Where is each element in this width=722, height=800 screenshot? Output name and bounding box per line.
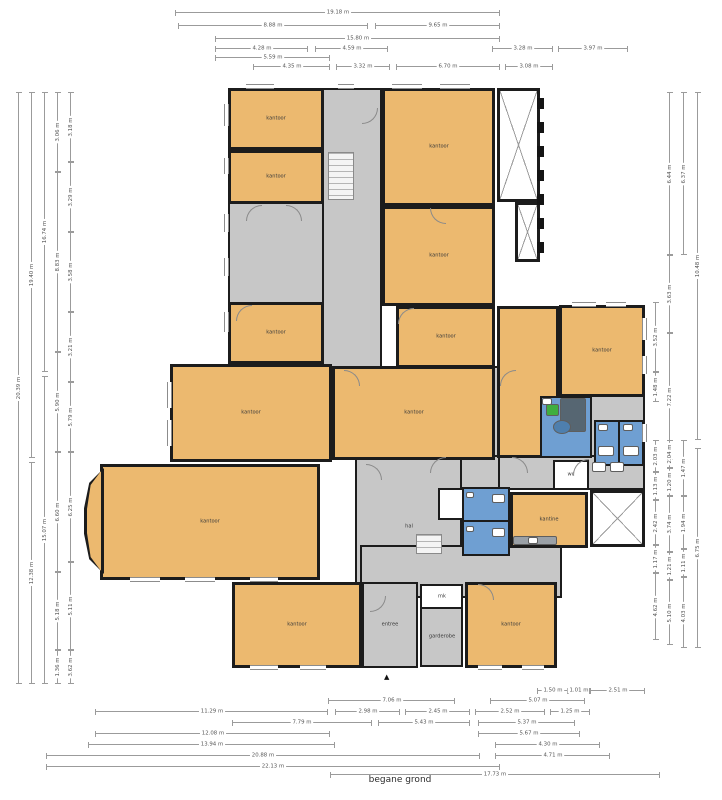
window [224, 258, 229, 276]
window [185, 577, 215, 582]
room-label: kantoor [266, 174, 286, 180]
fixture-sink [466, 526, 474, 532]
window [224, 312, 229, 332]
bay-window [84, 468, 104, 574]
room-label: kantoor [241, 410, 261, 416]
room-kantoor: kantoor [170, 364, 332, 462]
window [130, 577, 160, 582]
room-void [497, 88, 540, 202]
room-void [590, 490, 645, 547]
wall-segment [537, 242, 544, 253]
window [572, 302, 596, 307]
room-label: entree [382, 622, 399, 628]
window [642, 318, 647, 340]
window [338, 84, 354, 89]
room-label: kantoor [200, 519, 220, 525]
fixture-toilet [598, 446, 614, 456]
fixture-table [553, 420, 571, 434]
wall-segment [537, 122, 544, 133]
room-label: kantoor [592, 348, 612, 354]
room-hall [460, 455, 500, 491]
entrance-arrow: ▲ [384, 674, 389, 681]
window [224, 158, 229, 174]
window [606, 302, 626, 307]
room-kantoor: kantoor [228, 150, 324, 204]
window [224, 104, 229, 126]
room-kantoor: kantoor [382, 88, 495, 206]
room-kantoor: kantoor [559, 305, 645, 397]
window [392, 84, 422, 89]
window [478, 665, 502, 670]
window [300, 665, 326, 670]
room-room-white [438, 488, 464, 520]
window [642, 356, 647, 374]
wall-segment [537, 194, 544, 205]
wall-segment [537, 170, 544, 181]
room-label: mk [438, 594, 446, 600]
room-label: hal [405, 524, 413, 530]
room-void [515, 202, 540, 262]
fixture-toilet [492, 528, 505, 537]
room-label: kantine [539, 517, 558, 523]
room-label: kantoor [429, 253, 449, 259]
fixture-appliance [610, 462, 624, 472]
floor-name: begane grond [300, 775, 500, 785]
room-entree: entree [362, 582, 418, 668]
window [522, 665, 544, 670]
room-hall [322, 88, 382, 370]
fixture-sink [598, 424, 608, 431]
fixture-chair [546, 404, 559, 416]
room-label: kantoor [287, 622, 307, 628]
window [250, 577, 278, 582]
window [224, 214, 229, 232]
window [440, 84, 470, 89]
floor-plan: halentreegarderobekantoorkantoorkantoork… [0, 0, 722, 800]
room-kantoor: kantoor [100, 464, 320, 580]
room-label: kantoor [429, 144, 449, 150]
bay-window-floor [87, 471, 101, 571]
room-mk: mk [420, 584, 463, 609]
wall-segment [537, 146, 544, 157]
fixture-sink [528, 537, 538, 544]
fixture-sink [623, 424, 633, 431]
floorplan-canvas: 19.18 m8.88 m9.65 m15.80 m4.28 m4.59 m3.… [0, 0, 722, 800]
room-label: kantoor [266, 330, 286, 336]
room-label: kantoor [436, 334, 456, 340]
fixture-toilet [623, 446, 639, 456]
fixture-sink [542, 398, 552, 405]
room-garderobe: garderobe [420, 607, 463, 667]
wall-segment [537, 218, 544, 229]
window [167, 420, 172, 446]
window [250, 665, 278, 670]
room-label: kantoor [501, 622, 521, 628]
room-label: kantoor [404, 410, 424, 416]
room-hall [228, 202, 324, 304]
room-label: garderobe [428, 634, 454, 640]
window [167, 382, 172, 408]
stairs [416, 534, 442, 554]
fixture-toilet [492, 494, 505, 503]
wall-segment [537, 98, 544, 109]
room-kantoor: kantoor [228, 88, 324, 150]
fixture-sink [466, 492, 474, 498]
room-kantoor: kantoor [232, 582, 362, 668]
window [642, 424, 647, 442]
room-label: kantoor [266, 116, 286, 122]
fixture-appliance [592, 462, 606, 472]
stairs [328, 152, 354, 200]
window [246, 84, 274, 89]
